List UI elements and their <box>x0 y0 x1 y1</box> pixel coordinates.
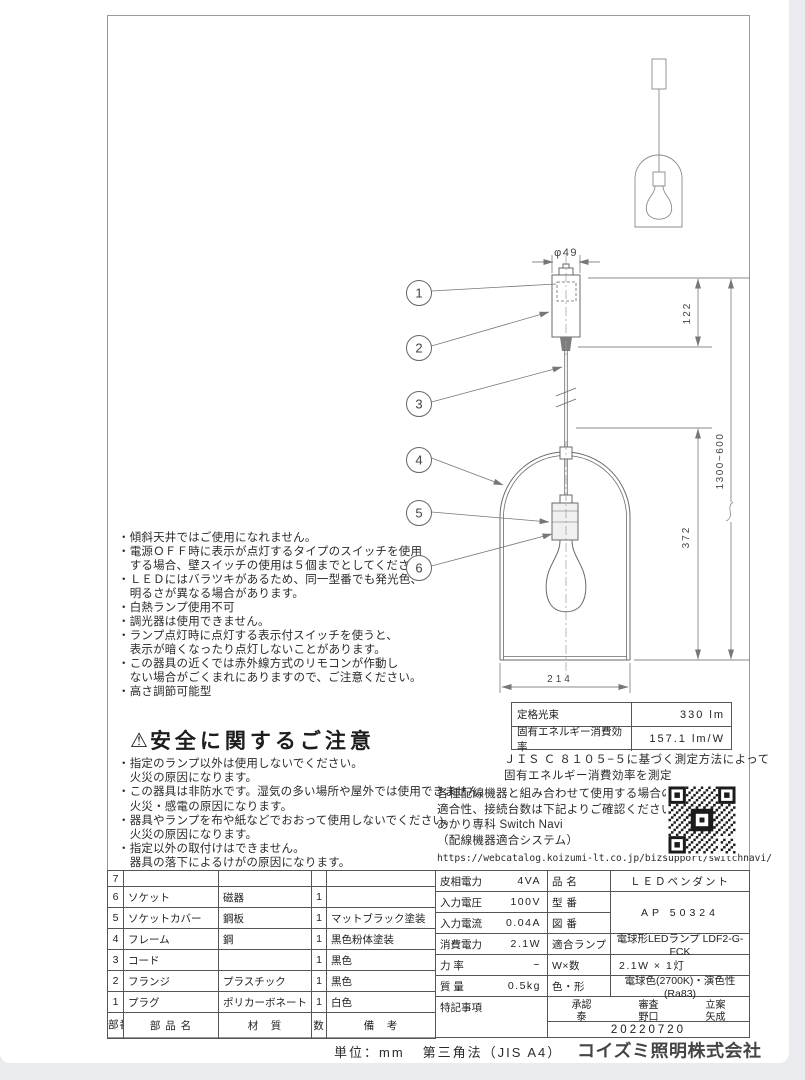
safety-note-line: ・器具やランプを布や紙などでおおって使用しないでください。 <box>118 814 491 828</box>
jis-note-line: 固有エネルギー消費効率を測定 <box>504 769 770 785</box>
part-material: 鋼 <box>219 929 312 950</box>
spec-value: 2.1W <box>510 938 541 950</box>
part-qty: 1 <box>312 929 327 950</box>
spec-value: 4VA <box>517 875 541 887</box>
safety-section-title: ⚠ 安全に関するご注意 <box>130 725 375 755</box>
spec-table: 皮相電力4VA 入力電圧100V 入力電流0.04A 消費電力2.1W 力 率−… <box>435 870 750 1038</box>
spec-row-input-current: 入力電流0.04A <box>436 913 548 934</box>
socket-cover <box>552 503 578 540</box>
table-row: 4 フレーム 鋼 1 黒色粉体塗装 <box>108 929 436 950</box>
spec-label: 入力電流 <box>440 916 482 931</box>
header-qty: 数 <box>312 1013 327 1039</box>
header-material: 材 質 <box>219 1013 312 1039</box>
rating-table: 定格光束 330 lm 固有エネルギー消費効率 157.1 lm/W <box>511 702 732 750</box>
part-qty: 1 <box>312 908 327 929</box>
part-qty <box>312 871 327 887</box>
spec-special-notes-cell: 特記事項 <box>436 997 548 1037</box>
part-note <box>327 871 436 887</box>
parts-table-header-row: 部番 部 品 名 材 質 数 備 考 <box>108 1013 436 1039</box>
projection-label: 第三角法（JIS A4） <box>423 1045 563 1060</box>
callout-6: 6 <box>415 561 422 576</box>
rating-row: 固有エネルギー消費効率 157.1 lm/W <box>512 727 731 751</box>
rating-value: 157.1 lm/W <box>632 727 731 751</box>
technical-drawing: φ49 122 372 1300~600 214 1 2 3 4 5 6 <box>380 25 755 700</box>
part-name: フランジ <box>124 971 219 992</box>
special-notes-label: 特記事項 <box>440 1000 482 1015</box>
part-note: 黒色 <box>327 950 436 971</box>
spec-label: 力 率 <box>440 958 464 973</box>
part-name: ソケット <box>124 887 219 908</box>
switch-navi-note: 各種配線機器と組み合わせて使用する場合の 適合性、接続台数は下記よりご確認くださ… <box>437 787 685 849</box>
part-note <box>327 887 436 908</box>
spec-value: 0.04A <box>506 917 541 929</box>
safety-note-line: ・この器具は非防水です。湿気の多い場所や屋外では使用できません。 <box>118 785 491 799</box>
spec-value: 0.5kg <box>508 980 541 992</box>
unit-projection-note: 単位：mm第三角法（JIS A4） <box>334 1042 580 1061</box>
part-qty: 1 <box>312 950 327 971</box>
model-label: 型 番 <box>548 892 611 913</box>
table-row: 1 プラグ ポリカーボネート 1 白色 <box>108 992 436 1013</box>
dim-diameter-label: φ49 <box>554 247 578 259</box>
part-material <box>219 871 312 887</box>
part-material: ポリカーボネート <box>219 992 312 1013</box>
safety-note-line: ・指定以外の取付けはできません。 <box>118 842 491 856</box>
spec-label: 皮相電力 <box>440 874 482 889</box>
safety-note-line: ・指定のランプ以外は使用しないでください。 <box>118 757 491 771</box>
callout-1: 1 <box>415 286 422 301</box>
safety-note-line: 火災・感電の原因になります。 <box>118 800 491 814</box>
part-no: 3 <box>108 950 124 971</box>
part-material: 鋼板 <box>219 908 312 929</box>
wattage-label: W×数 <box>548 955 611 976</box>
product-name-label: 品 名 <box>548 871 611 892</box>
part-material <box>219 950 312 971</box>
callout-4: 4 <box>415 453 422 468</box>
table-row: 7 <box>108 871 436 887</box>
spec-row-power-consumption: 消費電力2.1W <box>436 934 548 955</box>
warning-icon: ⚠ <box>130 728 148 753</box>
part-note: 白色 <box>327 992 436 1013</box>
review-name: 野口 <box>615 1009 682 1021</box>
drawing-number-label: 図 番 <box>548 913 611 934</box>
rating-label: 定格光束 <box>512 703 632 726</box>
thumbnail-canopy <box>652 59 666 89</box>
callout-leaders <box>432 284 563 566</box>
switch-navi-line: 適合性、接続台数は下記よりご確認ください。 <box>437 803 685 819</box>
part-note: 黒色 <box>327 971 436 992</box>
spec-row-power-factor: 力 率− <box>436 955 548 976</box>
company-logo: コイズミ照明株式会社 <box>577 1038 761 1063</box>
thumbnail-socket <box>653 172 665 186</box>
switch-navi-line: 各種配線機器と組み合わせて使用する場合の <box>437 787 685 803</box>
date-stamp: 20220720 <box>548 1021 749 1038</box>
safety-note-line: 器具の落下によるけがの原因になります。 <box>118 856 491 870</box>
spec-label: 質 量 <box>440 979 464 994</box>
model-number-value: AP 50324 <box>611 892 749 934</box>
switch-navi-line: あかり専科 Switch Navi <box>437 818 685 834</box>
draft-name: 矢成 <box>682 1009 749 1021</box>
safety-note-line: 火災の原因になります。 <box>118 771 491 785</box>
thumbnail-shade <box>635 155 682 227</box>
spec-row-apparent-power: 皮相電力4VA <box>436 871 548 892</box>
part-no: 1 <box>108 992 124 1013</box>
rating-value: 330 lm <box>632 703 731 726</box>
header-part-no: 部番 <box>108 1013 124 1039</box>
safety-note-line: 火災の原因になります。 <box>118 828 491 842</box>
table-row: 2 フランジ プラスチック 1 黒色 <box>108 971 436 992</box>
safety-title-text: 安全に関するご注意 <box>150 725 375 755</box>
cord-break-mark <box>556 388 576 396</box>
part-no: 4 <box>108 929 124 950</box>
spec-label: 消費電力 <box>440 937 482 952</box>
part-no: 5 <box>108 908 124 929</box>
part-name: プラグ <box>124 992 219 1013</box>
part-qty: 1 <box>312 971 327 992</box>
header-note: 備 考 <box>327 1013 436 1039</box>
color-shape-value: 電球色(2700K)・演色性(Ra83) <box>611 976 749 997</box>
table-row: 5 ソケットカバー 鋼板 1 マットブラック塗装 <box>108 908 436 929</box>
main-figure <box>500 264 630 660</box>
part-material: プラスチック <box>219 971 312 992</box>
callout-3: 3 <box>415 397 422 412</box>
part-name: フレーム <box>124 929 219 950</box>
part-name <box>124 871 219 887</box>
plug-dashed-outline <box>557 282 576 301</box>
table-row: 3 コード 1 黒色 <box>108 950 436 971</box>
part-no: 7 <box>108 871 124 887</box>
spec-value: − <box>533 959 541 971</box>
dimension-lines <box>500 255 750 693</box>
spec-row-input-voltage: 入力電圧100V <box>436 892 548 913</box>
table-row: 6 ソケット 磁器 1 <box>108 887 436 908</box>
callout-markers: 1 2 3 4 5 6 <box>407 281 432 581</box>
part-note: マットブラック塗装 <box>327 908 436 929</box>
dim-shade-width-label: 214 <box>547 674 573 685</box>
safety-notes: ・指定のランプ以外は使用しないでください。 火災の原因になります。 ・この器具は… <box>118 757 491 871</box>
compatible-lamp-value: 電球形LEDランプ LDF2-G-FCK <box>611 934 749 955</box>
product-name-value: ＬＥＤペンダント <box>611 871 749 892</box>
lamp-label: 適合ランプ <box>548 934 611 955</box>
callout-2: 2 <box>415 341 422 356</box>
parts-table: 7 6 ソケット 磁器 1 5 ソケットカバー 鋼板 1 マットブラック塗装 4… <box>107 870 436 1039</box>
thumbnail-figure <box>635 59 682 227</box>
approval-block: 承認 審査 立案 泰 野口 矢成 20220720 <box>548 997 749 1037</box>
spec-value: 100V <box>510 896 541 908</box>
cord-break-mark <box>556 399 576 407</box>
part-no: 2 <box>108 971 124 992</box>
jis-measurement-note: ＪＩＳ Ｃ ８１０５−５に基づく測定方法によって 固有エネルギー消費効率を測定 <box>504 753 770 784</box>
part-name: ソケットカバー <box>124 908 219 929</box>
approval-name: 泰 <box>548 1009 615 1021</box>
dim-overall-height-label: 1300~600 <box>715 433 726 490</box>
qr-code <box>666 784 738 856</box>
unit-label: 単位：mm <box>334 1045 405 1060</box>
spec-sheet-page: ・傾斜天井ではご使用になれません。 ・電源ＯＦＦ時に表示が点灯するタイプのスイッ… <box>0 0 805 1080</box>
thumbnail-bulb <box>646 186 671 219</box>
part-no: 6 <box>108 887 124 908</box>
header-part-name: 部 品 名 <box>124 1013 219 1039</box>
rating-label: 固有エネルギー消費効率 <box>512 727 632 751</box>
part-name: コード <box>124 950 219 971</box>
dim-canopy-height-label: 122 <box>682 302 693 325</box>
jis-note-line: ＪＩＳ Ｃ ８１０５−５に基づく測定方法によって <box>504 753 770 769</box>
color-shape-label: 色・形 <box>548 976 611 997</box>
spec-row-weight: 質 量0.5kg <box>436 976 548 997</box>
spec-label: 入力電圧 <box>440 895 482 910</box>
part-material: 磁器 <box>219 887 312 908</box>
part-qty: 1 <box>312 992 327 1013</box>
part-qty: 1 <box>312 887 327 908</box>
dim-shade-height-label: 372 <box>681 526 692 549</box>
callout-5: 5 <box>415 506 422 521</box>
switch-navi-line: （配線機器適合システム） <box>437 834 685 850</box>
part-note: 黒色粉体塗装 <box>327 929 436 950</box>
